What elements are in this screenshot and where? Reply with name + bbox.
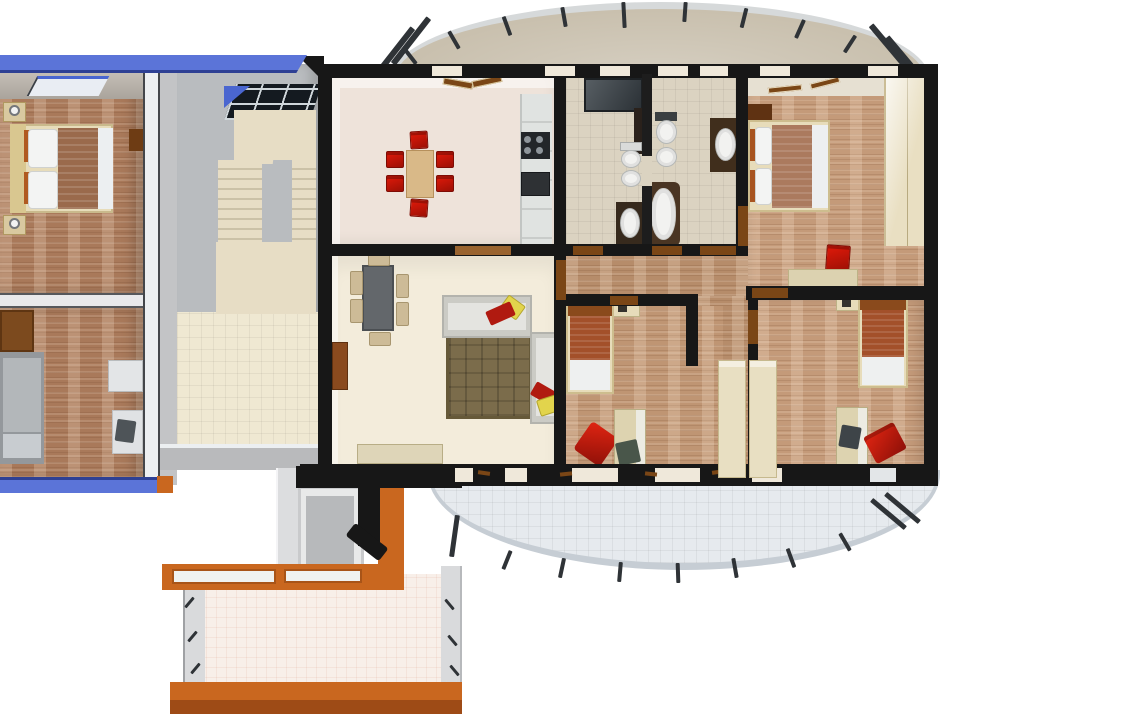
shelf-item xyxy=(842,299,851,307)
bed-sheet xyxy=(862,357,904,385)
window-opening xyxy=(545,66,575,76)
wall-kitchen-bath xyxy=(554,64,566,256)
dining-chair-tan xyxy=(350,299,363,323)
bed-pillow xyxy=(28,129,58,168)
skylight-window xyxy=(27,76,110,96)
left-apartment-divider-wall xyxy=(0,293,143,308)
dining-table-gray xyxy=(362,265,394,331)
hallway-floor xyxy=(566,256,748,296)
window-opening xyxy=(655,468,700,482)
floor-plan-stage xyxy=(0,0,1133,720)
dining-table-red-set xyxy=(406,150,434,198)
stove-burner xyxy=(524,136,531,143)
stove-burner xyxy=(536,147,543,154)
railing-post xyxy=(449,515,460,557)
window-opening xyxy=(455,468,473,482)
wall-corridor-jog xyxy=(686,294,698,366)
terrace-platform-top xyxy=(170,682,462,702)
toilet xyxy=(656,120,677,144)
entry-hall-floor xyxy=(177,312,318,446)
wall-left xyxy=(318,64,332,486)
door-lintel xyxy=(455,246,511,255)
stairs-landing-bottom xyxy=(216,242,316,314)
dining-chair-red xyxy=(386,151,404,168)
terrace-floor xyxy=(186,574,442,688)
dresser-white xyxy=(108,360,143,392)
wardrobe-brown xyxy=(0,310,34,352)
railing-corner-bar xyxy=(870,498,907,530)
desk-chair-green xyxy=(615,439,641,466)
wall-hallway-top xyxy=(318,244,748,256)
wardrobe-cream xyxy=(749,360,777,478)
chair-red xyxy=(825,244,851,272)
railing-post xyxy=(786,548,797,568)
wall-blue-top xyxy=(0,55,307,73)
shower-stall xyxy=(584,78,643,112)
dining-chair-tan xyxy=(396,302,409,326)
bidet xyxy=(621,170,641,187)
bed-sheet-end xyxy=(812,125,828,208)
vestibule-window xyxy=(172,569,276,584)
window-opening xyxy=(658,66,688,76)
lamp xyxy=(9,105,20,116)
window-opening xyxy=(760,66,790,76)
window-opening xyxy=(572,468,618,482)
railing-corner-bar xyxy=(884,492,921,524)
window-opening xyxy=(432,66,462,76)
door-threshold xyxy=(700,246,736,255)
stove-burner xyxy=(524,147,531,154)
door-gap-bath xyxy=(642,156,652,186)
door-threshold xyxy=(652,246,682,255)
stairs-flight-right xyxy=(292,160,316,252)
dining-chair-red xyxy=(436,175,454,192)
toilet xyxy=(621,150,641,168)
desk-chair xyxy=(115,419,137,443)
stairwell-left-wall xyxy=(160,62,177,485)
bed-gray-pillow xyxy=(3,434,41,458)
dining-chair-red xyxy=(409,198,428,217)
kitchen-counter xyxy=(520,94,552,244)
railing-post xyxy=(617,562,623,582)
bed-gray-mattress xyxy=(3,358,41,432)
bed-sheet xyxy=(570,360,610,390)
window-opening xyxy=(600,66,630,76)
bidet xyxy=(656,147,677,167)
door-threshold xyxy=(573,246,603,255)
party-wall xyxy=(143,58,160,492)
door-threshold xyxy=(738,206,748,246)
vestibule-window xyxy=(284,569,362,583)
dining-chair-red xyxy=(436,151,454,168)
railing-post xyxy=(731,558,738,578)
bed-blanket-orange xyxy=(862,310,904,357)
door-threshold xyxy=(610,296,638,305)
railing-post xyxy=(676,563,681,583)
stairs-flight-left xyxy=(218,160,262,244)
stairs-landing-top xyxy=(234,110,316,164)
vestibule-orange-wall-v xyxy=(378,482,404,590)
wall-blue-bottom xyxy=(0,477,160,493)
window-opening xyxy=(868,66,898,76)
window-opening xyxy=(505,468,527,482)
sink xyxy=(715,128,736,161)
dining-chair-red xyxy=(410,131,429,150)
dining-chair-tan xyxy=(396,274,409,298)
wall-right xyxy=(924,64,938,486)
oven xyxy=(521,172,550,196)
dining-chair-red xyxy=(386,175,404,192)
bathtub xyxy=(651,188,676,240)
railing-post xyxy=(558,558,566,578)
wardrobe-cream xyxy=(718,360,746,478)
bed-pillow xyxy=(755,127,772,165)
door-open xyxy=(332,342,348,390)
door-threshold xyxy=(752,288,788,298)
bed-pillow xyxy=(755,168,772,205)
lamp xyxy=(9,218,20,229)
railing-post xyxy=(838,532,851,551)
wall-orange-stub xyxy=(157,476,173,493)
desk-chair-dark xyxy=(838,424,862,449)
sink xyxy=(620,208,640,238)
railing-post xyxy=(501,550,512,570)
door-threshold xyxy=(556,260,566,300)
bed-blanket-orange xyxy=(570,316,610,360)
dining-chair-tan xyxy=(350,271,363,295)
wall-bottom xyxy=(300,464,938,486)
dining-chair-tan xyxy=(369,332,391,346)
rug xyxy=(446,335,532,419)
bed-blanket xyxy=(772,125,812,208)
bed-blanket xyxy=(58,128,98,209)
wall-cabinet xyxy=(129,129,143,151)
terrace-platform-front xyxy=(170,700,462,714)
sideboard xyxy=(357,444,443,464)
bed-pillow xyxy=(28,171,58,209)
door-threshold xyxy=(748,310,758,344)
stove-burner xyxy=(536,136,543,143)
window-opening xyxy=(700,66,728,76)
bed-sheet-end xyxy=(98,128,113,209)
window-opening xyxy=(870,468,896,482)
